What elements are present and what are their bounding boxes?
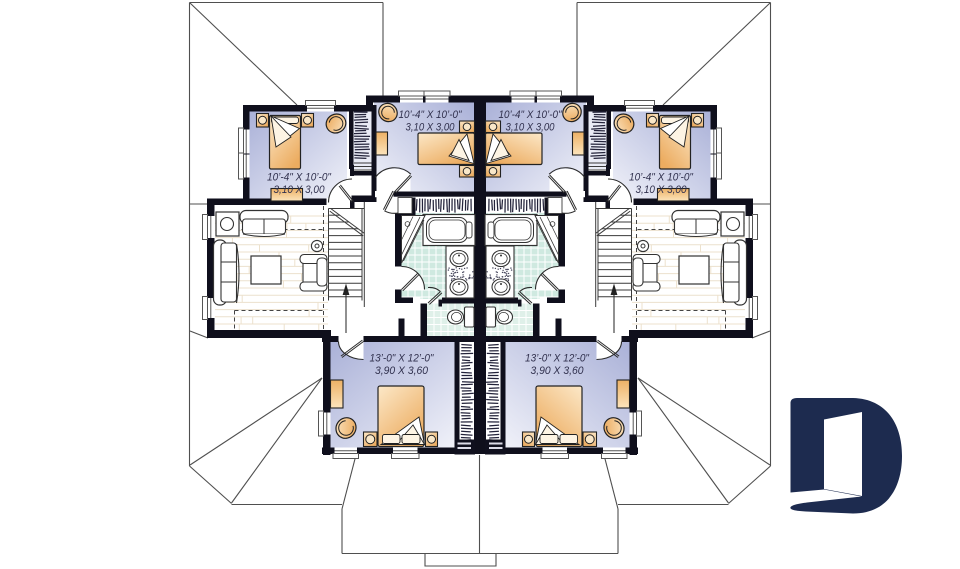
svg-text:10’-4" X 10’-0": 10’-4" X 10’-0" xyxy=(399,109,463,121)
svg-text:3,10 X 3,00: 3,10 X 3,00 xyxy=(636,184,687,196)
svg-text:10’-4" X 10’-0": 10’-4" X 10’-0" xyxy=(499,109,563,121)
svg-text:13’-0" X 12’-0": 13’-0" X 12’-0" xyxy=(370,353,435,365)
svg-text:13’-0" X 12’-0": 13’-0" X 12’-0" xyxy=(525,353,590,365)
svg-text:3,10 X 3,00: 3,10 X 3,00 xyxy=(506,122,555,134)
svg-text:3,10 X 3,00: 3,10 X 3,00 xyxy=(406,122,455,134)
svg-text:10’-4" X 10’-0": 10’-4" X 10’-0" xyxy=(629,172,694,184)
svg-text:3,90 X 3,60: 3,90 X 3,60 xyxy=(375,365,428,377)
svg-text:3,90 X 3,60: 3,90 X 3,60 xyxy=(531,365,584,377)
svg-text:10’-4" X 10’-0": 10’-4" X 10’-0" xyxy=(267,172,332,184)
svg-text:3,10 X 3,00: 3,10 X 3,00 xyxy=(274,184,325,196)
